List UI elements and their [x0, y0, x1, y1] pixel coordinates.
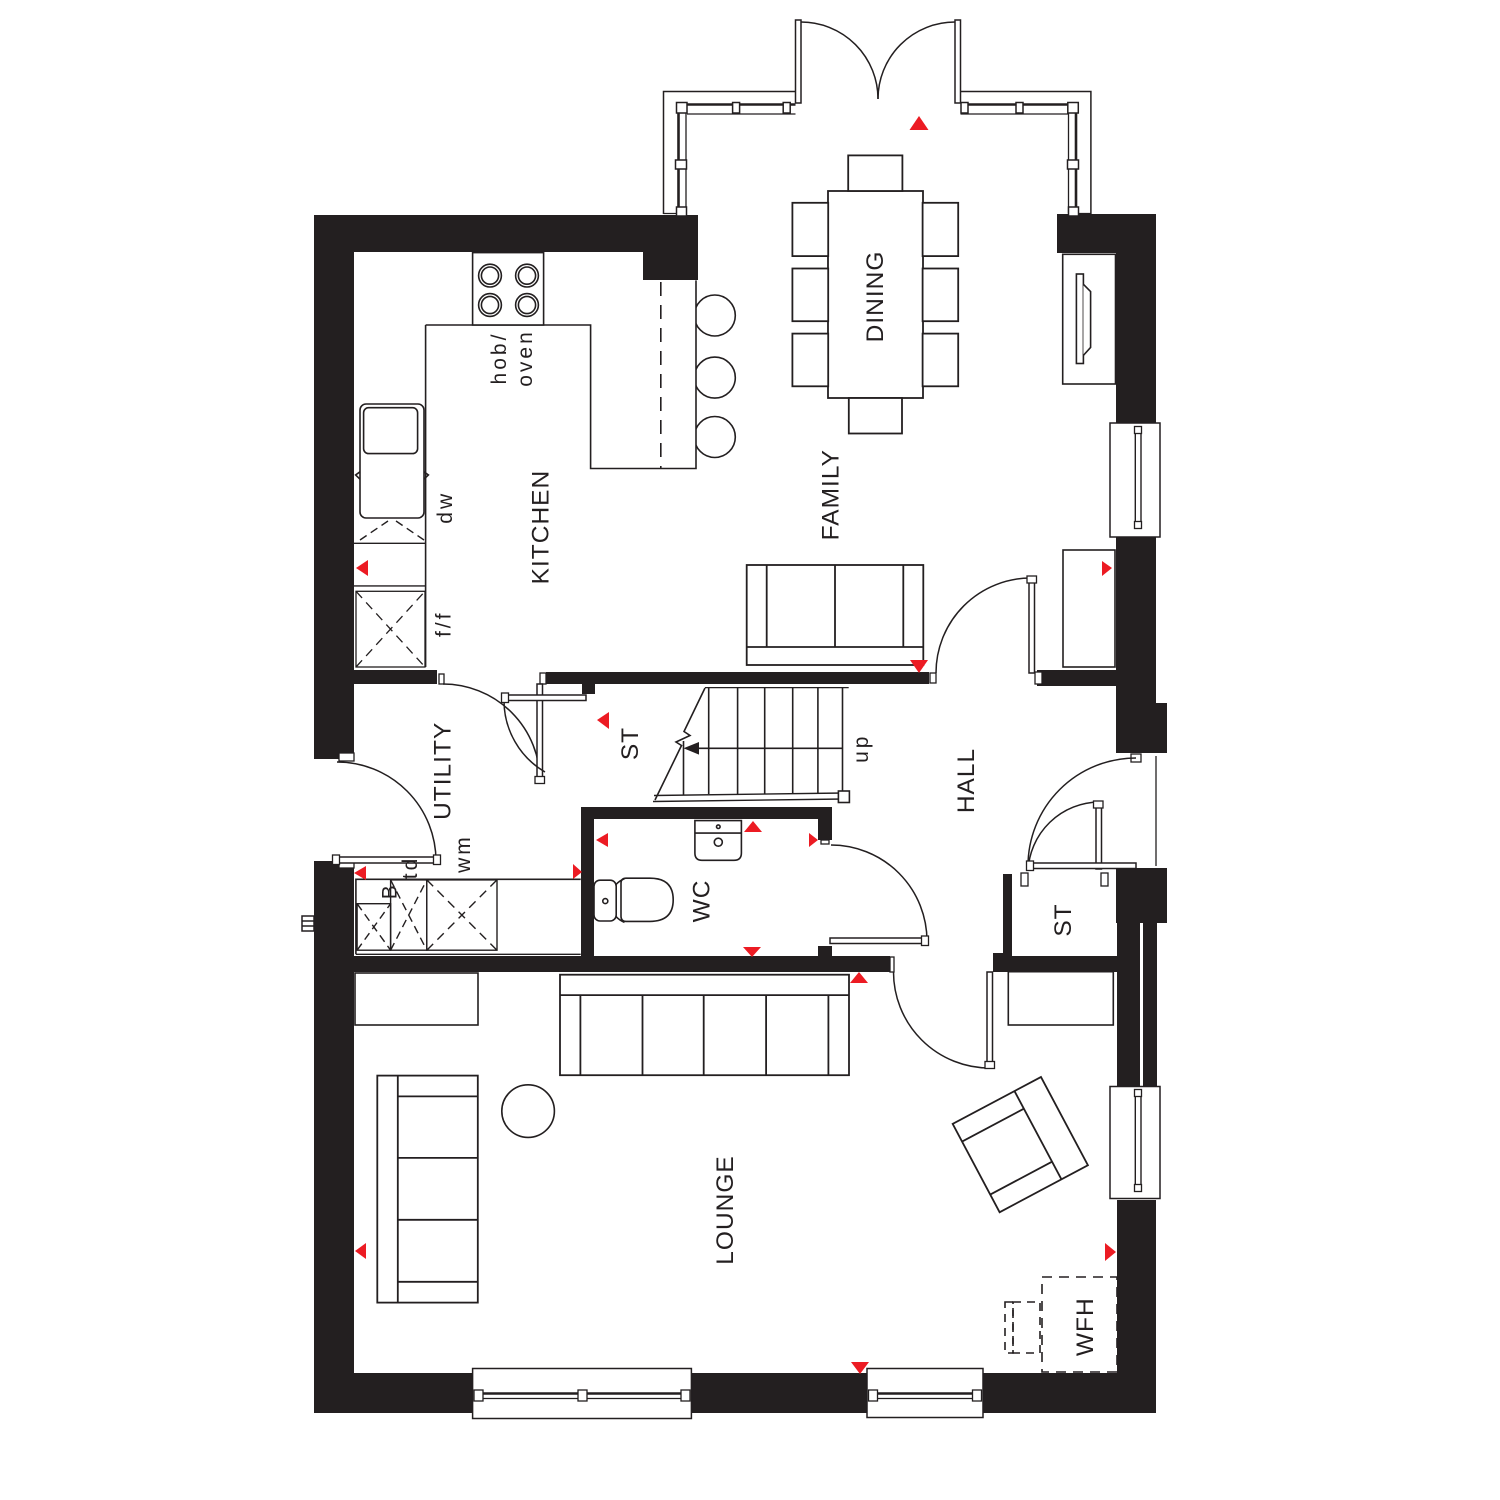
svg-text:KITCHEN: KITCHEN: [527, 470, 554, 585]
svg-text:ST: ST: [617, 727, 644, 760]
svg-text:HALL: HALL: [953, 748, 980, 813]
svg-text:up: up: [850, 734, 873, 763]
svg-text:hob/: hob/: [488, 332, 511, 385]
svg-text:oven: oven: [514, 329, 537, 387]
svg-text:td: td: [399, 856, 422, 880]
svg-text:wm: wm: [452, 834, 475, 874]
svg-text:WC: WC: [689, 880, 716, 923]
svg-text:LOUNGE: LOUNGE: [712, 1155, 739, 1264]
svg-text:dw: dw: [434, 491, 457, 524]
svg-text:FAMILY: FAMILY: [818, 449, 845, 540]
svg-text:DINING: DINING: [862, 251, 889, 343]
svg-text:ST: ST: [1050, 903, 1077, 936]
svg-text:WFH: WFH: [1072, 1297, 1099, 1356]
svg-text:B: B: [379, 882, 402, 899]
svg-text:f/f: f/f: [433, 611, 456, 638]
svg-text:UTILITY: UTILITY: [430, 722, 457, 820]
